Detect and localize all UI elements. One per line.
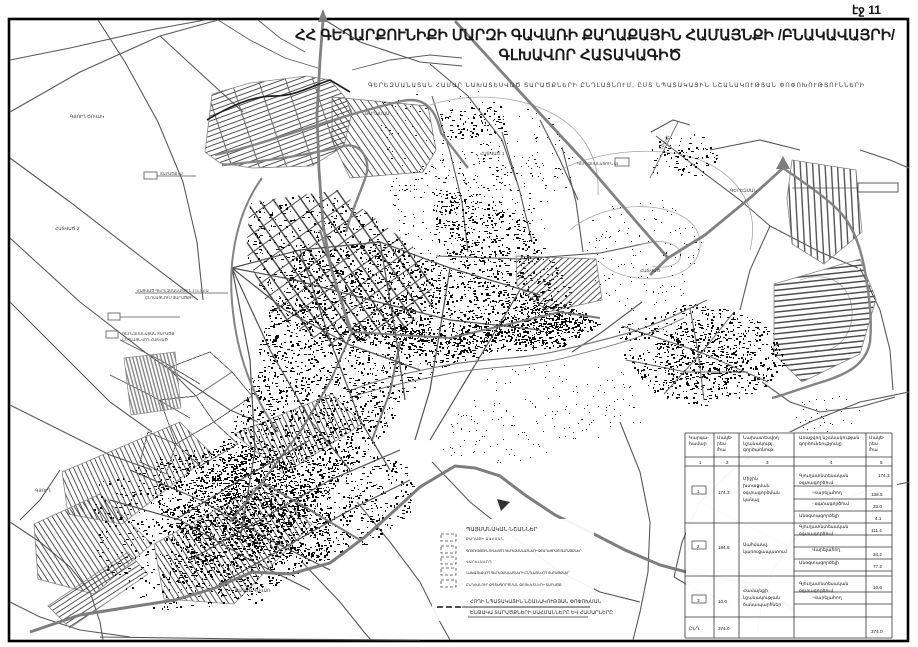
svg-text:4.1: 4.1	[875, 516, 882, 521]
svg-text:ԳԵՐԵԶՄԱՆԱՏԱՆ ՏԱՐԱԾՔ: ԳԵՐԵԶՄԱՆԱՏԱՆ ՏԱՐԱԾՔ	[122, 332, 174, 336]
svg-text:էջ 11: էջ 11	[852, 3, 881, 17]
svg-text:5: 5	[880, 460, 883, 465]
svg-text:ԵՆԹԱԿԱ ՏԱՐԱԾՔՆԵՐԻ ՍԱՀՄԱՆՆԵՐԸ Ե: ԵՆԹԱԿԱ ՏԱՐԱԾՔՆԵՐԻ ՍԱՀՄԱՆՆԵՐԸ ԵՎ ՀԱՄԱՐՆԵՐ…	[470, 610, 613, 616]
svg-text:ԳԵՐԵԶՄԱՆ: ԳԵՐԵԶՄԱՆ	[730, 188, 758, 193]
svg-text:ԸՆԴԼԱՅՆՈՒՄ ՏԱՐԱԾՔԻ: ԸՆԴԼԱՅՆՈՒՄ ՏԱՐԱԾՔԻ	[145, 296, 193, 300]
svg-text:ԳՅՈՒՂ ԾՈՎԱԿ: ԳՅՈՒՂ ԾՈՎԱԿ	[70, 114, 105, 119]
svg-text:10.6: 10.6	[718, 599, 727, 604]
svg-text:4: 4	[830, 460, 833, 465]
svg-text:ԸՆԴԼԱՅՆՎՈՂ ՀԱՏՎԱԾ: ԸՆԴԼԱՅՆՎՈՂ ՀԱՏՎԱԾ	[122, 338, 168, 342]
svg-text:3: 3	[766, 460, 769, 465]
svg-text:10.6: 10.6	[873, 585, 882, 590]
svg-text:ԸՆԴ.: ԸՆԴ.	[689, 626, 700, 631]
svg-text:ԳԵՐԵԶՄԱՆԱՏՈՒՆ N1: ԳԵՐԵԶՄԱՆԱՏՈՒՆ N1	[577, 162, 619, 166]
svg-text:ՀԱՏՎԱԾ 2: ՀԱՏՎԱԾ 2	[55, 226, 80, 231]
svg-text:374.0: 374.0	[871, 629, 883, 634]
svg-text:ՀՈՂԻ ՆՊԱՏԱԿԱՅԻՆ ՆՇԱՆԱԿՈՒԹՅԱՆ Փ: ՀՈՂԻ ՆՊԱՏԱԿԱՅԻՆ ՆՇԱՆԱԿՈՒԹՅԱՆ ՓՈՓՈԽՄԱՆ	[470, 599, 602, 605]
svg-text:1: 1	[697, 489, 700, 494]
svg-text:174.3: 174.3	[878, 473, 890, 478]
svg-text:33.0: 33.0	[873, 504, 882, 509]
svg-text:34.2: 34.2	[873, 552, 882, 557]
svg-text:ՀՀ ԳԵՂԱՐՔՈՒՆԻՔԻ ՄԱՐԶԻ ԳԱՎԱՌԻ Ք: ՀՀ ԳԵՂԱՐՔՈՒՆԻՔԻ ՄԱՐԶԻ ԳԱՎԱՌԻ ՔԱՂԱՔԱՅԻՆ Հ…	[295, 27, 896, 44]
svg-text:/հա: /հա	[717, 447, 726, 452]
svg-text:111.4: 111.4	[871, 528, 882, 533]
svg-text:3: 3	[697, 598, 700, 603]
svg-text:ԳԵՐԵԶՄԱՆԱՏԱՆ ՀԱՄԱՐ ՆԱԽԱՏԵՍՎԱԾ: ԳԵՐԵԶՄԱՆԱՏԱՆ ՀԱՄԱՐ ՆԱԽԱՏԵՍՎԱԾ ՏԱՐԱԾՔՆԵՐԻ…	[368, 82, 864, 89]
svg-text:ՔԱՂԱՔ ԳԱՎԱՌ: ՔԱՂԱՔ ԳԱՎԱՌ	[235, 588, 271, 593]
svg-text:ՊԱՅՄԱՆԱԿԱՆ ՆՇԱՆՆԵՐ: ՊԱՅՄԱՆԱԿԱՆ ՆՇԱՆՆԵՐ	[466, 526, 538, 533]
svg-text:138.5: 138.5	[871, 492, 883, 497]
svg-text:ՆԱԽԱՏԵՍՎՈՂ ԳԵՐԵԶՄԱՆԱՏՆԵՐԻ ԸՆԴԼ: ՆԱԽԱՏԵՍՎՈՂ ԳԵՐԵԶՄԱՆԱՏՆԵՐԻ ԸՆԴԼԱՅՆՎՈՂ ՏԱՐ…	[466, 571, 570, 575]
svg-text:77.2: 77.2	[873, 564, 882, 569]
svg-text:ՔԱՂԱՔԻ ՍԱՀՄԱՆ: ՔԱՂԱՔԻ ՍԱՀՄԱՆ	[466, 537, 504, 541]
svg-text:ԳՅՈՒՂ: ԳՅՈՒՂ	[35, 488, 51, 493]
svg-text:ԳԼԽԱՎՈՐ ՀԱՏԱԿԱԳԻԾ: ԳԼԽԱՎՈՐ ՀԱՏԱԿԱԳԻԾ	[499, 47, 682, 64]
svg-text:ՀԱՏՎԱԾ ԳԵՐԵԶՄԱՆԱՏՈՒՆ 174.3 ՀԱ: ՀԱՏՎԱԾ ԳԵՐԵԶՄԱՆԱՏՈՒՆ 174.3 ՀԱ	[137, 289, 209, 293]
svg-text:184.5: 184.5	[718, 545, 730, 550]
svg-text:ՏԱՐԱԾՔ N2: ՏԱՐԱԾՔ N2	[160, 172, 183, 176]
svg-text:ԸՆԴՀԱՆՈՒՐ ՕԳՏԱԳՈՐԾՄԱՆ ՕԲՅԵԿՏՆԵ: ԸՆԴՀԱՆՈՒՐ ՕԳՏԱԳՈՐԾՄԱՆ ՕԲՅԵԿՏՆԵՐԻ ՏԱՐԱԾՔ	[466, 583, 562, 587]
svg-text:/հա: /հա	[869, 447, 878, 452]
svg-text:ԹԱՂԱՄԱՍ: ԹԱՂԱՄԱՍ	[365, 111, 390, 116]
svg-text:174.3: 174.3	[718, 490, 730, 495]
svg-text:ԳՈՅՈՒԹՅՈՒՆ ՈՒՆԵՑՈՂ ԳԵՐԵԶՄԱՆԱՏՆ: ԳՈՅՈՒԹՅՈՒՆ ՈՒՆԵՑՈՂ ԳԵՐԵԶՄԱՆԱՏՆԵՐԻ ԶԲԱՂԵՑ…	[466, 549, 582, 553]
svg-text:374.0: 374.0	[718, 626, 730, 631]
svg-text:2: 2	[726, 460, 729, 465]
svg-text:ՀԱՏՎԱԾ 1: ՀԱՏՎԱԾ 1	[480, 151, 505, 156]
svg-text:1: 1	[699, 460, 702, 465]
svg-text:ՀԱՏՎԱԾ: ՀԱՏՎԱԾ	[640, 268, 661, 273]
svg-text:ՎԱՐԵԼԱՀՈՂ: ՎԱՐԵԼԱՀՈՂ	[466, 560, 492, 564]
svg-text:2: 2	[697, 544, 700, 549]
